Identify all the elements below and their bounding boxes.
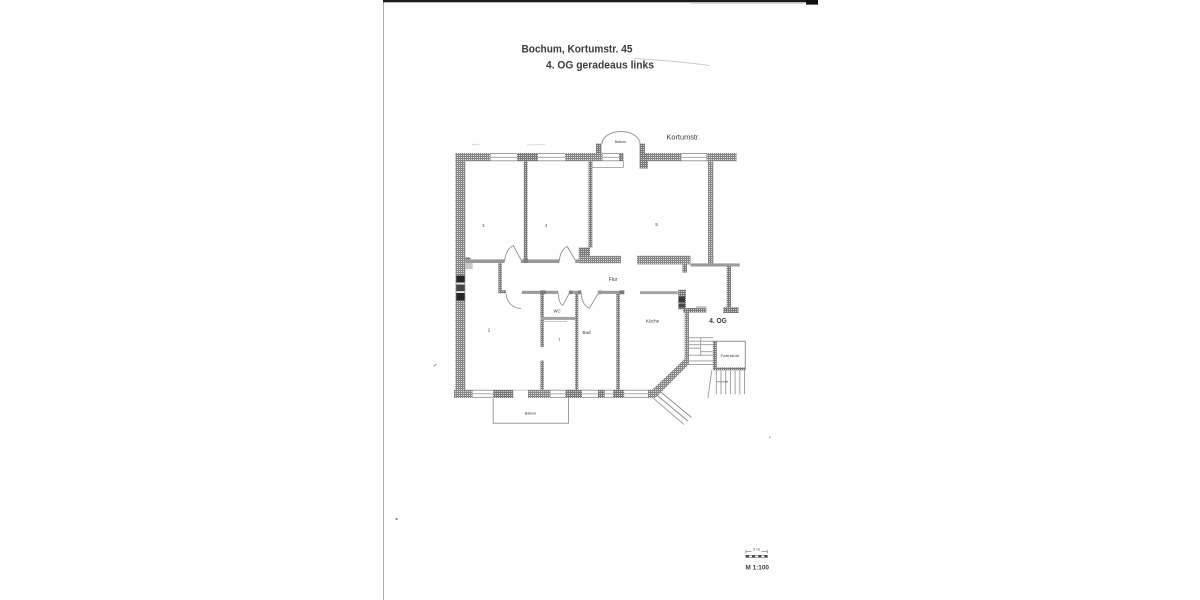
svg-text:Bad: Bad	[582, 330, 591, 335]
svg-text:4. OG: 4. OG	[709, 318, 727, 325]
svg-text:2 m: 2 m	[753, 547, 760, 552]
svg-text:Balkon: Balkon	[525, 411, 537, 415]
svg-text:Fahrstuhl: Fahrstuhl	[721, 353, 740, 358]
svg-text:Küche: Küche	[646, 318, 660, 324]
svg-text:WC: WC	[554, 308, 561, 313]
svg-text:4. OG geradeaus links: 4. OG geradeaus links	[546, 60, 654, 72]
svg-text:Kortumstr.: Kortumstr.	[667, 135, 701, 142]
svg-text:Bochum, Kortumstr. 45: Bochum, Kortumstr. 45	[522, 44, 633, 56]
svg-text:Flur: Flur	[609, 277, 618, 283]
svg-text:Balkon: Balkon	[615, 140, 627, 144]
svg-text:M 1:100: M 1:100	[746, 564, 770, 571]
